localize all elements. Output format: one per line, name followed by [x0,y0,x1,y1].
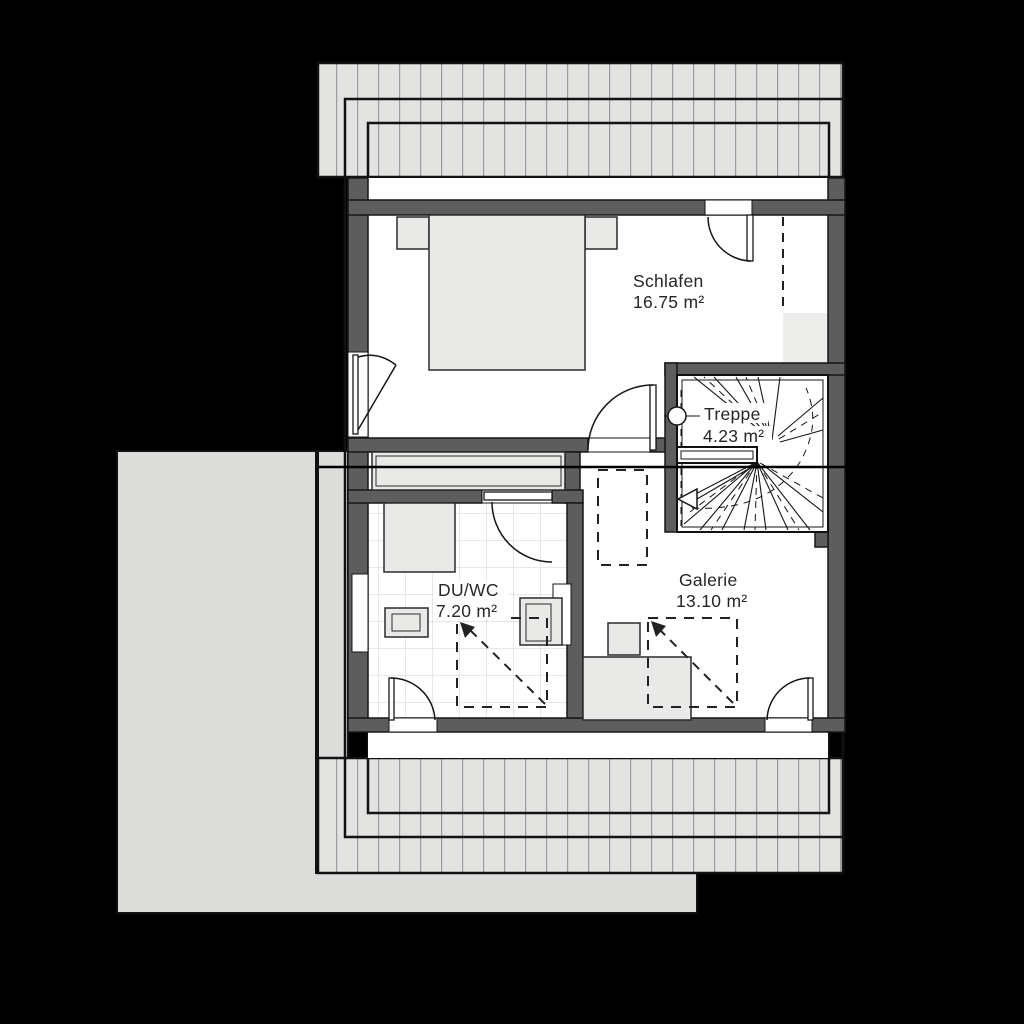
wall-east [828,178,845,732]
roof-overhang-bottom [318,758,843,873]
stair-handrail [677,447,757,463]
desk-chair [608,623,640,655]
desk [583,657,691,720]
wall-schlafen-south-a [348,438,588,452]
bed [429,215,585,370]
wall-north [348,200,845,215]
wardrobe [372,452,565,490]
screenshot-canvas: Schlafen 16.75 m² Treppe 4.23 m² DU/WC 7… [0,0,1024,1024]
room-area-schlafen: 16.75 m² [633,292,704,312]
wall-duwc-north-a [348,490,482,503]
wall-duwc-north-b [552,490,583,503]
wall-niche-west [352,574,368,652]
room-label-duwc: DU/WC [438,580,499,600]
west-eaves-strip [318,451,348,758]
room-label-treppe: Treppe [704,404,761,424]
stair-post-symbol [668,407,686,425]
room-label-galerie: Galerie [679,570,738,590]
staircase [664,375,828,532]
room-area-duwc: 7.20 m² [436,601,497,621]
nightstand-right [585,217,617,249]
roof-overhang-top [318,63,843,177]
nightstand-left [397,217,429,249]
floor-plan-svg: Schlafen 16.75 m² Treppe 4.23 m² DU/WC 7… [0,0,1024,1024]
wall-stair-west [665,363,677,532]
shower [384,503,455,572]
room-area-galerie: 13.10 m² [676,591,747,611]
room-label-schlafen: Schlafen [633,271,704,291]
wall-stair-stub [815,532,828,547]
low-height-zone [783,313,828,363]
room-area-treppe: 4.23 m² [703,426,764,446]
wall-stair-north [665,363,845,375]
washbasin [385,608,428,637]
